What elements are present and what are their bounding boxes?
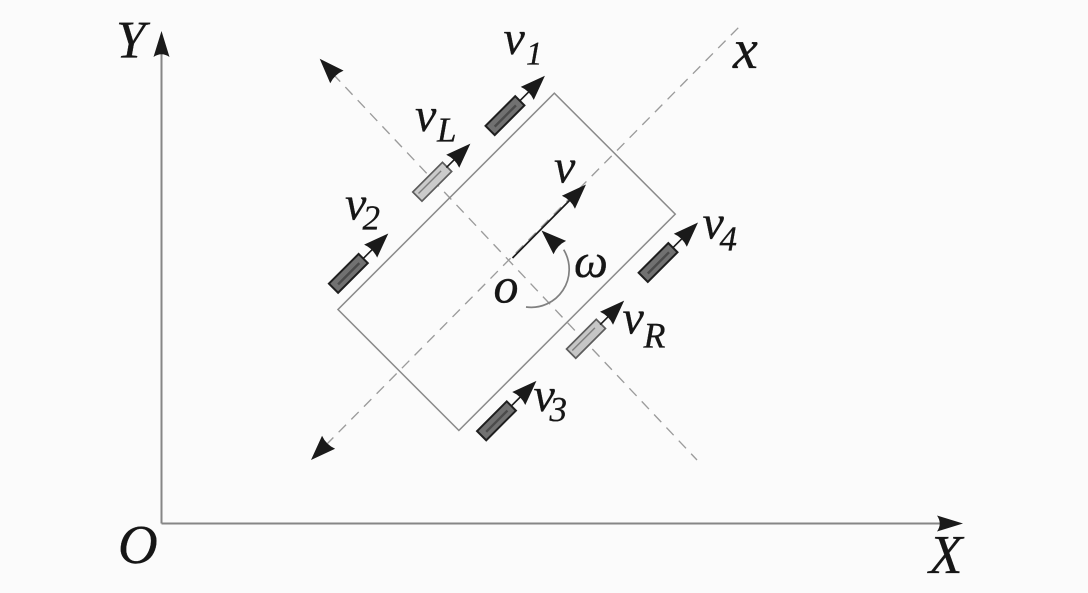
svg-text:R: R (643, 316, 666, 356)
svg-text:1: 1 (526, 37, 543, 73)
svg-text:o: o (494, 258, 519, 314)
svg-text:2: 2 (363, 199, 381, 238)
svg-text:O: O (118, 514, 158, 575)
svg-text:v: v (415, 89, 437, 142)
svg-text:ω: ω (574, 235, 608, 288)
svg-text:v: v (623, 292, 645, 345)
svg-text:3: 3 (549, 390, 568, 429)
svg-text:4: 4 (720, 220, 738, 259)
svg-text:v: v (504, 12, 526, 65)
svg-text:x: x (732, 19, 758, 81)
svg-text:v: v (554, 141, 576, 194)
svg-text:X: X (927, 524, 965, 585)
svg-text:L: L (436, 111, 456, 150)
